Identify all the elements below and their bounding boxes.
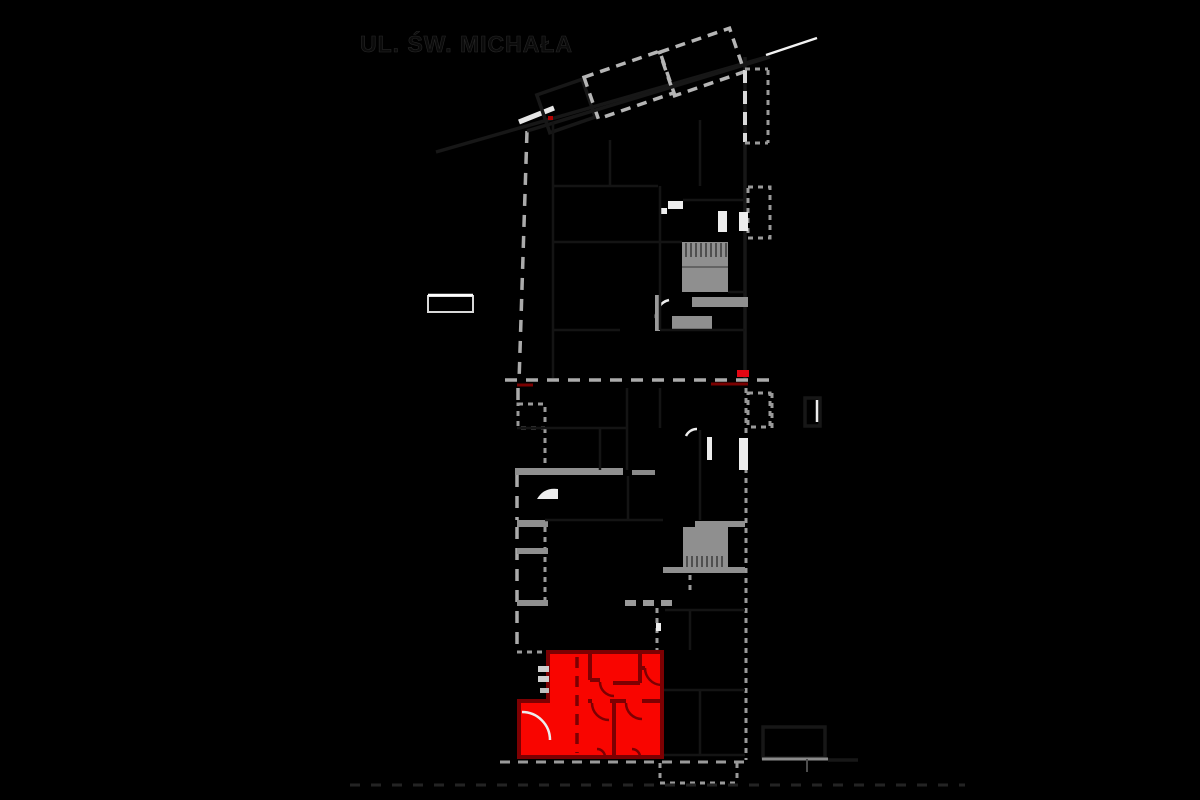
selected-unit[interactable] <box>519 652 662 757</box>
door-opening-white <box>707 437 712 460</box>
landing-gray <box>672 316 712 329</box>
street-name-label: UL. ŚW. MICHAŁA <box>360 30 573 57</box>
boundary-dash-on-unit <box>538 666 549 672</box>
small-red-dot <box>548 116 553 120</box>
floor-plan-page: UL. ŚW. MICHAŁA <box>0 0 1200 800</box>
boundary-dash-on-unit <box>540 688 549 693</box>
balcony-door-white <box>739 438 748 470</box>
red-entrance-marker <box>737 370 749 377</box>
landing-gray <box>692 297 748 307</box>
upper-stairwell <box>682 242 728 292</box>
elevator-door-white <box>739 212 748 231</box>
elevator-door-white <box>718 211 727 232</box>
door-opening-white <box>668 201 683 209</box>
site-plan-svg: UL. ŚW. MICHAŁA <box>0 0 1200 800</box>
boundary-dash-on-unit <box>538 676 549 682</box>
